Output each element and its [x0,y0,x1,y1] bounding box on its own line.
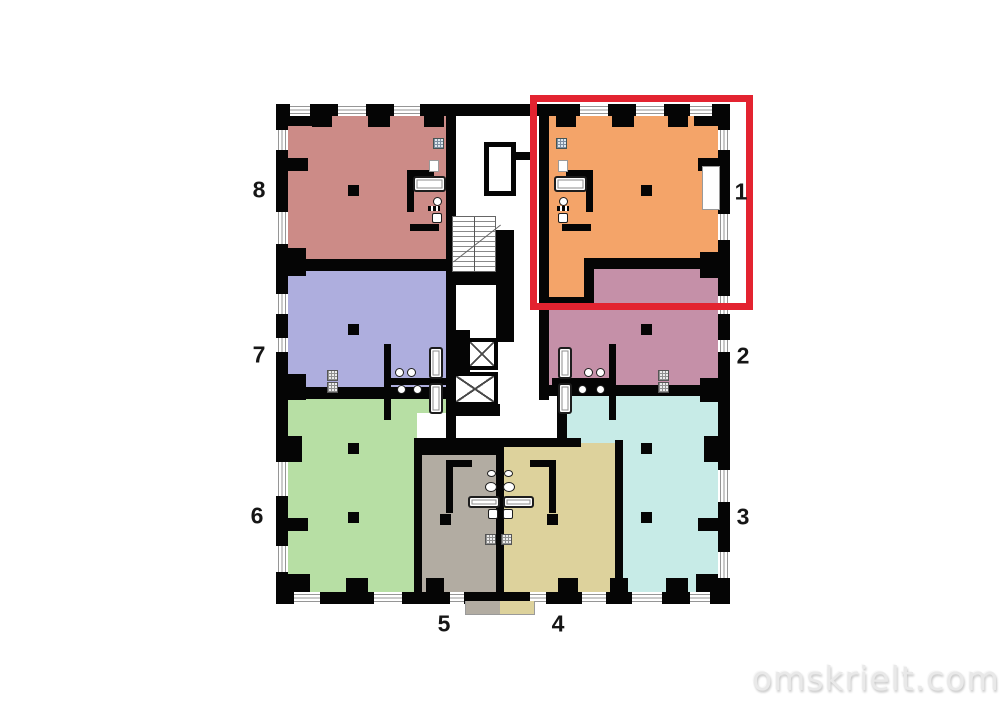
wall [414,447,504,455]
sink-icon [433,197,442,206]
window [718,340,730,352]
sink-icon [395,368,404,377]
wall [288,158,308,171]
wall [276,436,302,462]
wall [426,578,444,592]
vent-grid-icon [658,382,669,393]
window [290,104,310,116]
column [348,185,359,196]
elevator-icon [452,372,498,406]
window [276,462,288,496]
column [641,512,652,523]
unit-1-highlight-frame[interactable] [530,95,753,310]
apartment-3-label: 3 [737,504,750,531]
window [294,592,320,604]
window [374,592,402,604]
apartment-6-label: 6 [251,503,264,530]
bathtub-icon [558,347,572,379]
balcony [465,601,535,615]
sink-cabinet-icon [429,160,439,172]
bathtub-icon [429,347,443,379]
wall [276,374,306,400]
window [394,104,420,116]
wall [276,104,288,604]
wall [558,578,578,592]
apartment-8-label: 8 [253,177,266,204]
toilet-icon [503,509,513,519]
window [276,294,288,314]
window [450,592,464,604]
sink-icon [578,385,587,394]
wall [496,230,514,342]
window [582,592,606,604]
balcony-half [500,601,534,614]
column [348,512,359,523]
apartment-5-label: 5 [438,611,451,638]
wall [698,518,718,531]
wall [549,467,556,513]
watermark: omskrielt.com [752,659,1000,698]
column [641,324,652,335]
apartment-7-area[interactable] [281,264,450,390]
sink-icon [596,368,605,377]
sink-icon [503,482,515,492]
column [440,514,451,525]
wall [346,578,368,592]
vent-grid-icon [658,370,669,381]
vent-grid-icon [433,138,444,149]
window [276,130,288,150]
wall [496,440,504,614]
window [690,592,710,604]
vent-grid-icon [485,534,496,545]
bathtub-icon [429,383,443,414]
wall [288,518,308,531]
wall [610,578,628,592]
bathtub-icon [413,176,446,192]
elevator-icon [466,338,498,370]
bathtub-icon [468,496,500,508]
column [348,443,359,454]
apartment-4-area[interactable] [503,443,623,598]
stairs-icon [452,216,496,272]
wall [545,385,725,396]
bathtub-icon [503,496,534,508]
window [718,552,730,578]
apartment-4-label: 4 [552,611,565,638]
sink-icon [485,482,497,492]
wall [704,436,730,462]
balcony-half [466,601,500,614]
wall [446,460,472,467]
apartment-7-label: 7 [253,342,266,369]
door-threshold [428,206,440,211]
column [547,514,558,525]
wall [410,224,439,231]
sink-icon [584,368,593,377]
window [338,104,366,116]
column [348,324,359,335]
sink-icon [487,470,496,477]
toilet-icon [432,213,442,223]
wall [414,447,422,602]
wall [446,467,453,513]
sink-icon [407,368,416,377]
window [276,338,288,352]
wall [424,112,444,127]
window [718,470,730,502]
window [276,546,288,572]
sink-icon [397,385,406,394]
corridor-area [417,413,563,440]
vent-grid-icon [327,382,338,393]
window [632,592,662,604]
vent-grid-icon [501,534,512,545]
window [276,212,288,244]
wall [700,378,728,402]
wall [312,112,332,127]
vent-shaft-room [484,142,516,196]
bathtub-icon [558,383,572,414]
column [641,443,652,454]
wall [450,270,497,285]
apartment-1-label: 1 [735,179,748,206]
sink-icon [504,470,513,477]
sink-icon [596,385,605,394]
wall [368,112,390,127]
floorplan-page: 1 2 3 4 5 6 7 8 omskrielt.com [0,0,1000,723]
toilet-icon [488,509,498,519]
vent-grid-icon [327,370,338,381]
sink-icon [413,385,422,394]
wall [666,578,688,592]
wall [276,248,306,276]
wall [530,460,556,467]
apartment-2-label: 2 [737,343,750,370]
